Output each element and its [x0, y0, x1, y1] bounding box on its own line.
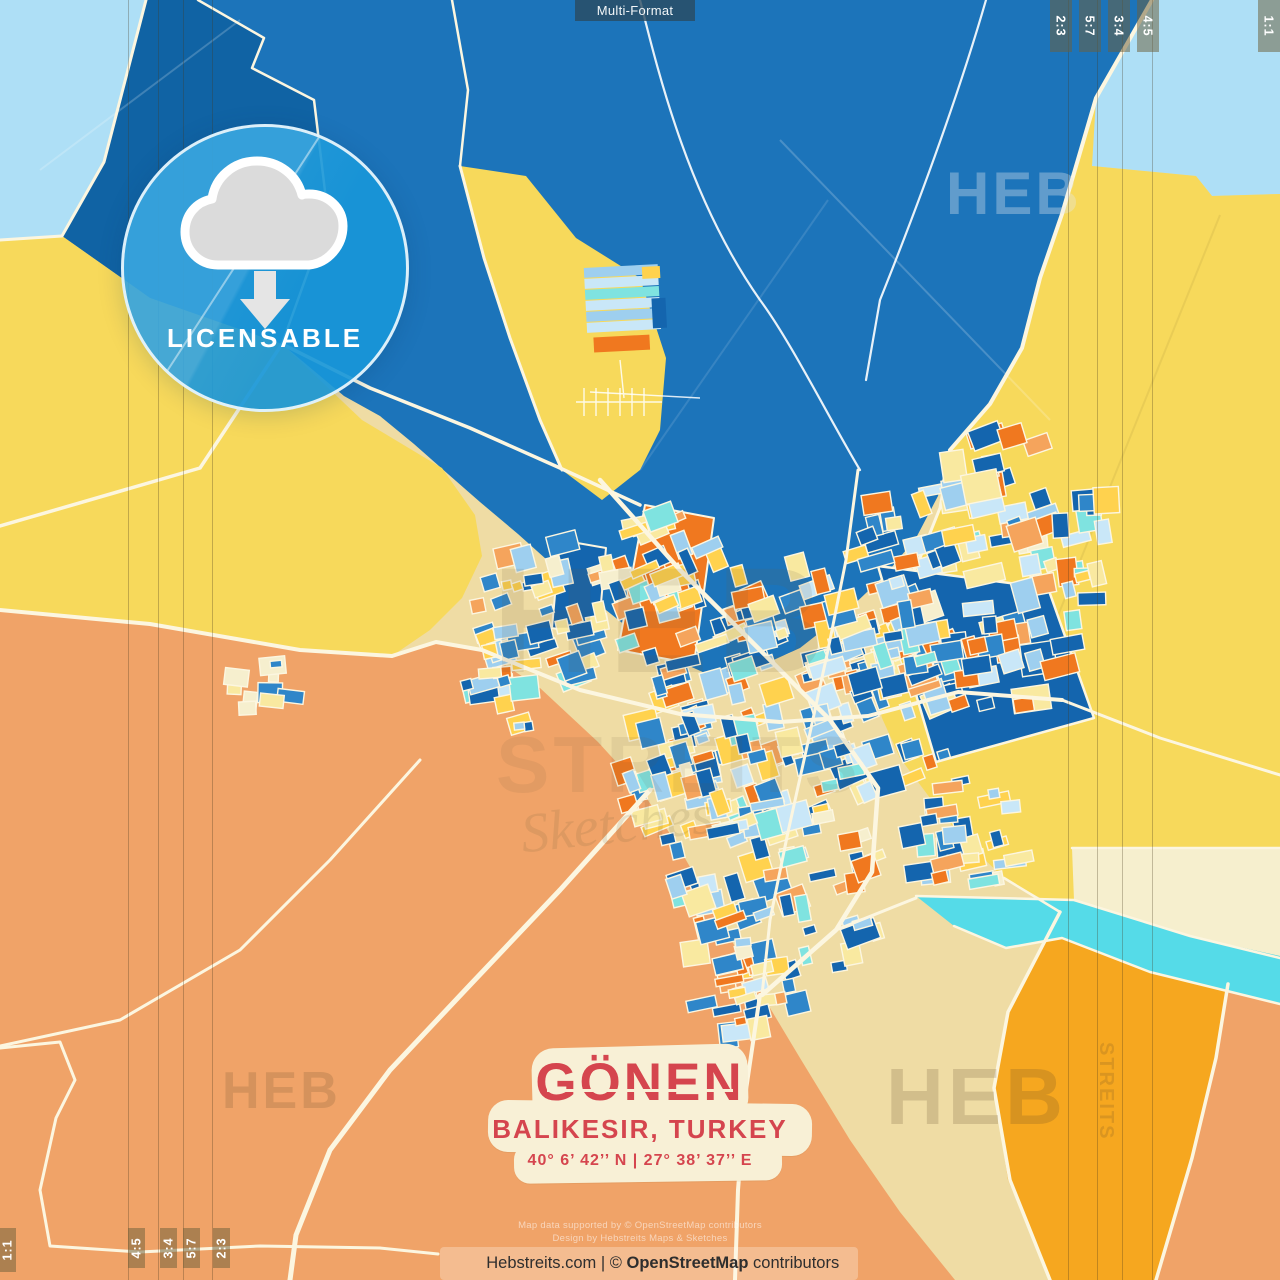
- format-tab-3-4-top[interactable]: 3:4: [1108, 0, 1130, 52]
- city-parcel: [747, 1016, 771, 1041]
- region-name: BALIKESIR, TURKEY: [0, 1114, 1280, 1145]
- format-tab-5-7-top[interactable]: 5:7: [1079, 0, 1101, 52]
- city-parcel: [775, 992, 787, 1005]
- city-parcel: [961, 655, 992, 676]
- city-parcel: [838, 831, 862, 851]
- city-parcel: [470, 598, 486, 614]
- city-parcel: [942, 825, 967, 844]
- city-parcel: [1019, 554, 1041, 577]
- map-poster-preview: HEB STREITS Sketches HEB HEB HEB STREITS…: [0, 0, 1280, 1280]
- cloud-download-icon: [124, 127, 406, 409]
- city-parcel: [983, 616, 998, 634]
- city-parcel: [962, 600, 994, 616]
- city-parcel: [961, 469, 1002, 505]
- attribution-line-1: Map data supported by © OpenStreetMap co…: [0, 1220, 1280, 1231]
- multi-format-badge: Multi-Format: [575, 0, 695, 21]
- city-parcel: [861, 491, 893, 515]
- city-parcel: [224, 668, 250, 688]
- city-parcel: [1052, 513, 1069, 538]
- city-parcel: [904, 861, 935, 883]
- licensable-badge[interactable]: LICENSABLE: [121, 124, 409, 412]
- footer-bar: Hebstreits.com | © OpenStreetMap contrib…: [440, 1247, 858, 1280]
- city-name-inline-stripe: [547, 1089, 733, 1092]
- format-tab-2-3-top[interactable]: 2:3: [1050, 0, 1072, 52]
- city-parcel: [920, 813, 938, 826]
- format-tab-label: 3:4: [1112, 15, 1126, 36]
- city-parcel: [1078, 592, 1106, 605]
- city-parcel: [883, 630, 903, 642]
- city-parcel: [460, 678, 473, 691]
- city-parcel: [1027, 616, 1048, 638]
- city-parcel: [1001, 800, 1021, 814]
- city-parcel: [735, 938, 751, 948]
- footer-site-link[interactable]: Hebstreits.com: [486, 1254, 596, 1272]
- format-tab-label: 4:5: [1141, 15, 1155, 36]
- format-tab-label: 5:7: [1083, 15, 1097, 36]
- format-tab-4-5-top[interactable]: 4:5: [1137, 0, 1159, 52]
- city-parcel: [259, 693, 284, 709]
- footer-osm-link[interactable]: OpenStreetMap: [627, 1254, 749, 1272]
- footer-separator: | ©: [596, 1254, 626, 1272]
- licensable-label: LICENSABLE: [124, 323, 406, 354]
- multi-format-label: Multi-Format: [597, 3, 674, 18]
- coordinates: 40° 6’ 42’’ N | 27° 38’ 37’’ E: [0, 1152, 1280, 1170]
- city-parcel: [967, 637, 987, 655]
- city-parcel: [931, 870, 949, 885]
- city-parcel: [1064, 610, 1082, 631]
- city-parcel: [238, 701, 256, 715]
- watermark-heb-topright: HEB: [946, 160, 1082, 227]
- format-tab-label: 2:3: [1054, 15, 1068, 36]
- city-parcel: [885, 516, 902, 530]
- watermark-heb-center: HEB: [492, 536, 833, 704]
- city-parcel: [988, 788, 1000, 799]
- city-name: GÖNEN: [0, 1052, 1280, 1113]
- footer-suffix: contributors: [748, 1254, 839, 1272]
- format-tab-1-1-top[interactable]: 1:1: [1258, 0, 1280, 52]
- format-tab-label: 1:1: [1262, 15, 1276, 36]
- city-parcel: [270, 660, 282, 668]
